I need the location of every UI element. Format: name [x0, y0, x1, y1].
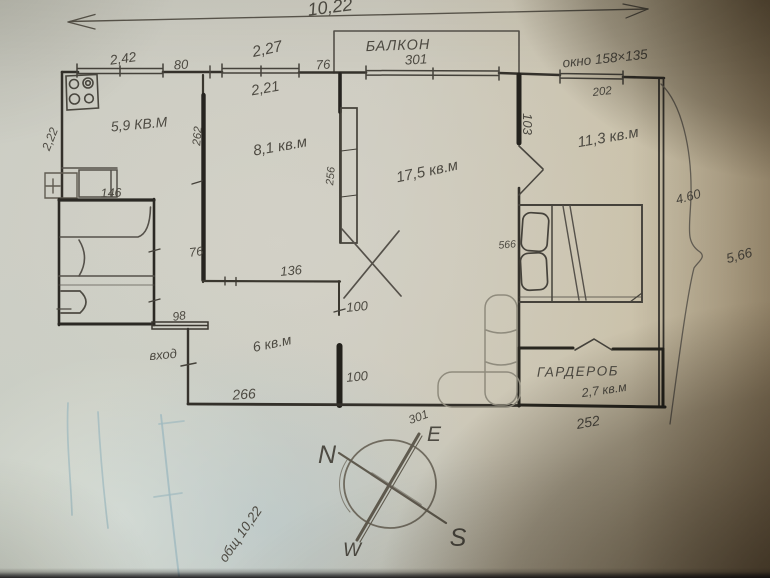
svg-text:8,1 кв.м: 8,1 кв.м — [252, 133, 309, 159]
svg-text:2,22: 2,22 — [39, 125, 61, 153]
svg-text:2,27: 2,27 — [250, 38, 285, 61]
svg-text:262: 262 — [191, 125, 205, 147]
svg-text:100: 100 — [346, 298, 370, 315]
svg-text:вход: вход — [149, 346, 178, 363]
svg-text:136: 136 — [280, 262, 304, 279]
svg-text:10,22: 10,22 — [306, 0, 353, 20]
svg-text:ГАРДЕРОБ: ГАРДЕРОБ — [537, 363, 619, 379]
svg-text:76: 76 — [315, 56, 331, 72]
svg-text:566: 566 — [498, 238, 517, 251]
svg-text:5,9 КВ.М: 5,9 КВ.М — [110, 114, 168, 135]
svg-text:76: 76 — [188, 244, 204, 260]
svg-text:W: W — [343, 540, 363, 561]
svg-text:общ 10,22: общ 10,22 — [216, 503, 265, 565]
svg-text:266: 266 — [231, 385, 257, 403]
svg-text:202: 202 — [591, 85, 613, 99]
svg-text:6 кв.м: 6 кв.м — [251, 331, 293, 355]
svg-text:146: 146 — [100, 186, 121, 201]
svg-text:103: 103 — [520, 113, 535, 135]
svg-text:окно 158×135: окно 158×135 — [562, 47, 649, 71]
svg-text:2,42: 2,42 — [108, 49, 138, 68]
svg-text:4.60: 4.60 — [674, 186, 703, 207]
svg-text:100: 100 — [346, 368, 370, 385]
svg-text:252: 252 — [574, 412, 601, 432]
svg-text:98: 98 — [172, 308, 187, 324]
svg-text:301: 301 — [404, 51, 427, 67]
svg-text:S: S — [450, 524, 467, 552]
svg-text:2,7 кв.м: 2,7 кв.м — [580, 380, 628, 400]
svg-text:17,5 кв.м: 17,5 кв.м — [395, 157, 460, 187]
svg-text:2,21: 2,21 — [249, 79, 281, 100]
svg-text:5,66: 5,66 — [724, 245, 754, 266]
svg-text:E: E — [427, 423, 442, 446]
svg-text:256: 256 — [324, 166, 338, 187]
svg-text:80: 80 — [173, 56, 189, 72]
svg-text:11,3 кв.м: 11,3 кв.м — [576, 124, 640, 151]
svg-text:N: N — [318, 441, 337, 469]
